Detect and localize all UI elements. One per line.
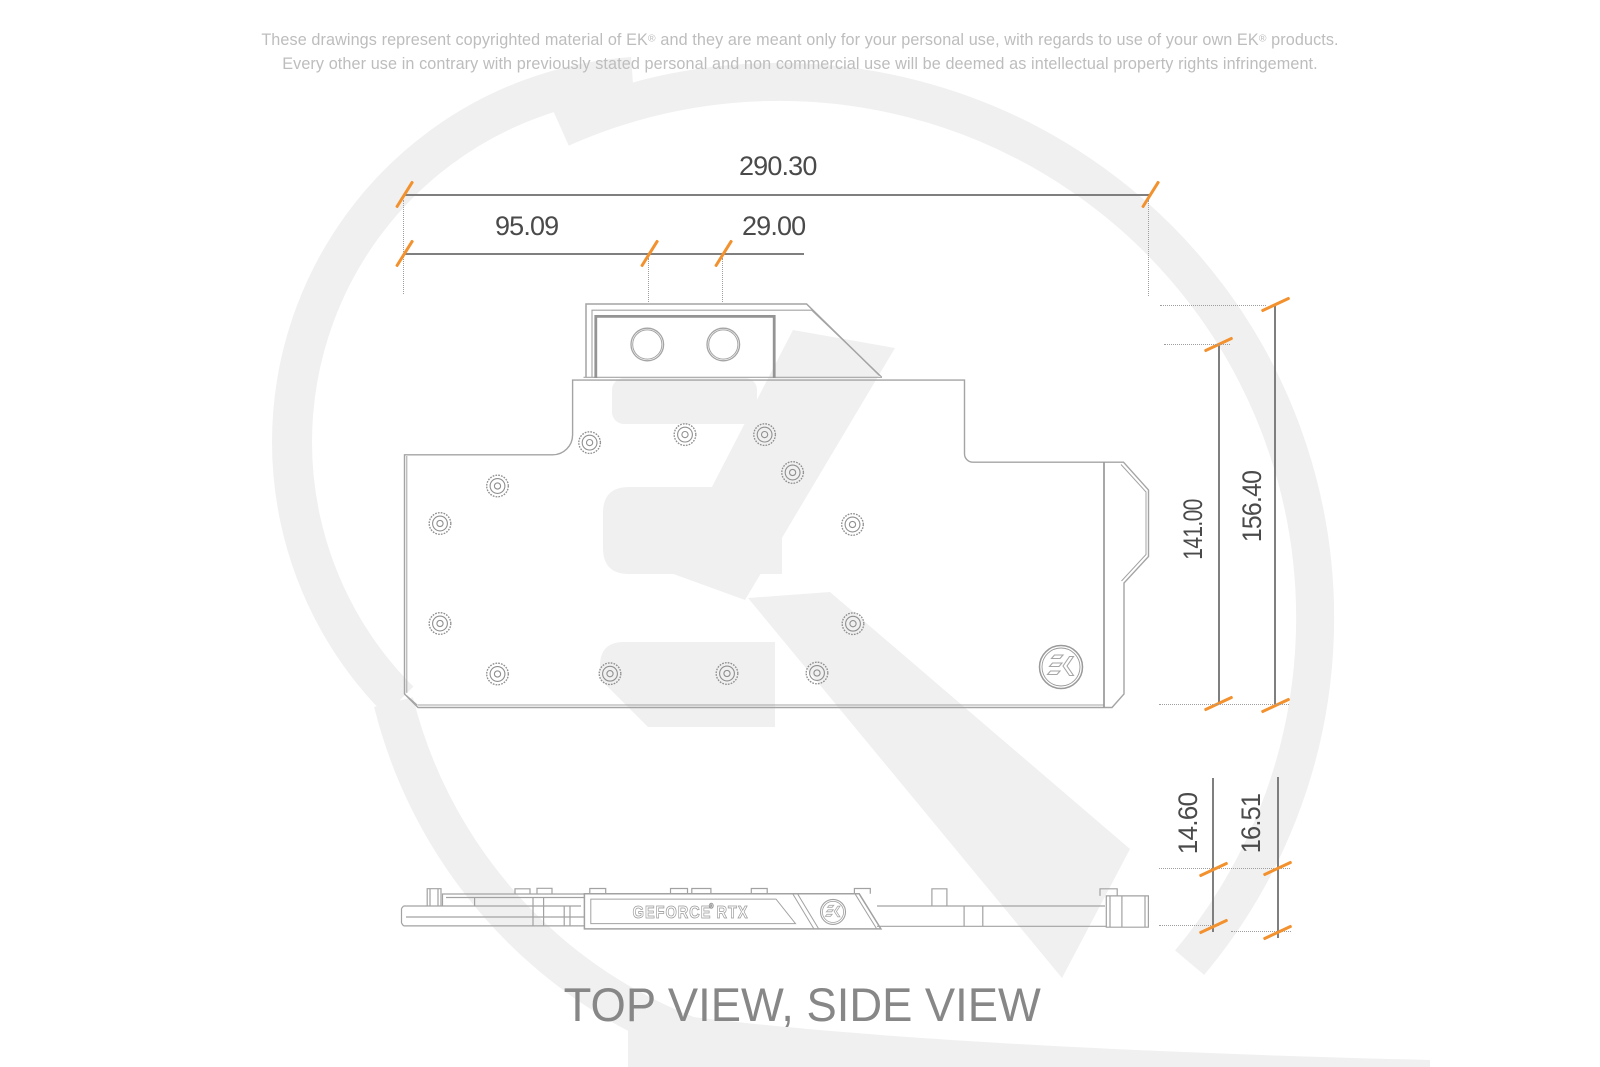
svg-text:®: ® xyxy=(709,902,714,911)
svg-text:GEFORCE: GEFORCE xyxy=(633,903,712,923)
svg-text:RTX: RTX xyxy=(716,903,748,923)
